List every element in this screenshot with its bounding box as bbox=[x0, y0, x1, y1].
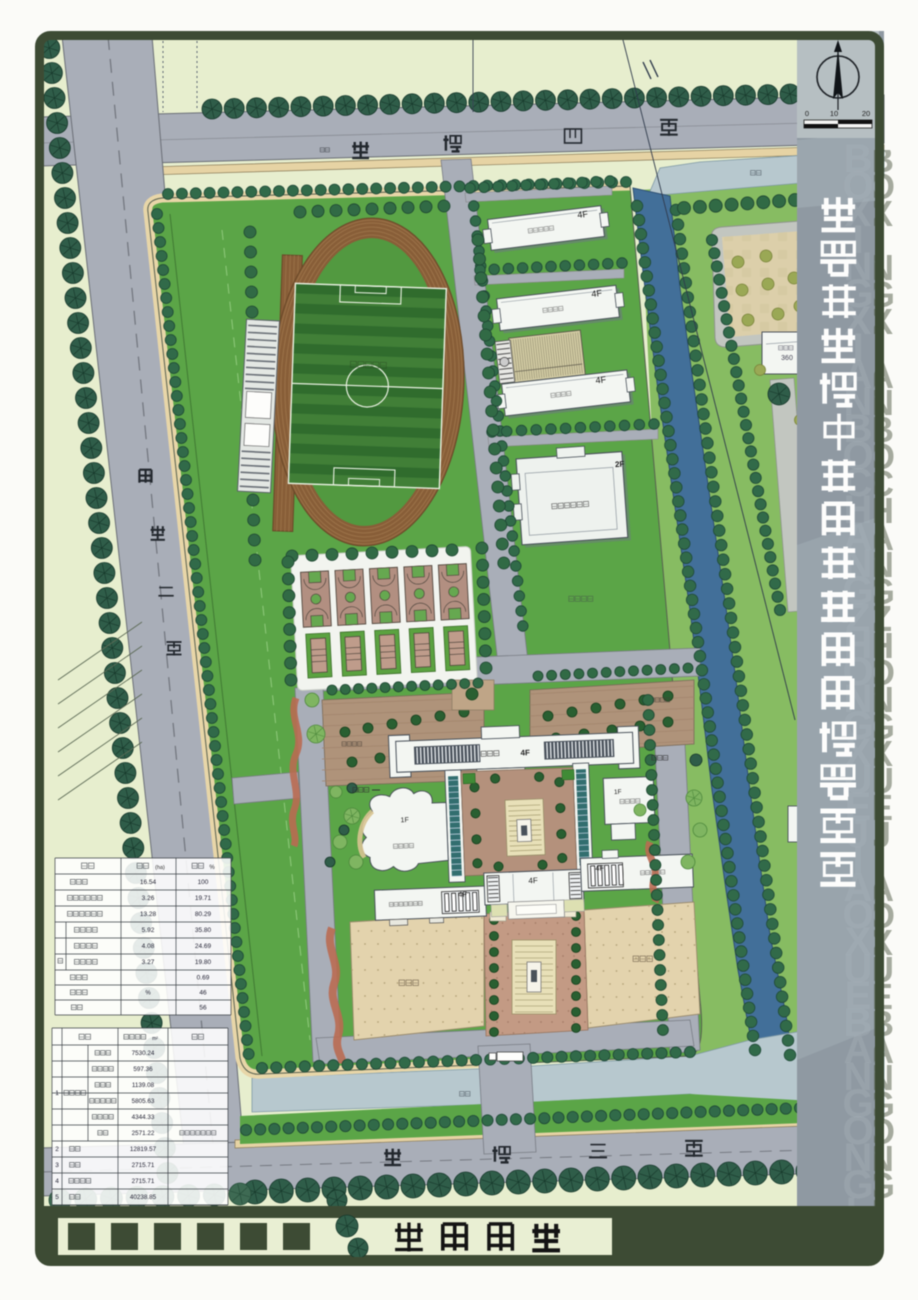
svg-text:1F: 1F bbox=[614, 789, 622, 796]
svg-text:5: 5 bbox=[55, 1194, 59, 1201]
svg-text:4.08: 4.08 bbox=[142, 943, 155, 950]
svg-text:5.92: 5.92 bbox=[142, 927, 155, 934]
svg-text:40238.85: 40238.85 bbox=[130, 1194, 157, 1201]
svg-text:(ha): (ha) bbox=[155, 865, 165, 871]
svg-text:4F: 4F bbox=[595, 863, 605, 872]
svg-text:%: % bbox=[145, 991, 151, 997]
svg-text:2: 2 bbox=[55, 1146, 59, 1153]
svg-text:4: 4 bbox=[55, 1178, 59, 1185]
svg-text:4F: 4F bbox=[520, 748, 530, 757]
svg-text:46: 46 bbox=[199, 990, 207, 997]
svg-text:4F: 4F bbox=[591, 288, 603, 299]
svg-text:1139.08: 1139.08 bbox=[132, 1082, 155, 1089]
svg-text:2F: 2F bbox=[615, 459, 625, 469]
svg-text:3.27: 3.27 bbox=[142, 959, 155, 966]
svg-text:100: 100 bbox=[198, 879, 209, 886]
svg-text:4F: 4F bbox=[595, 374, 607, 385]
svg-text:597.36: 597.36 bbox=[133, 1066, 153, 1073]
svg-text:10: 10 bbox=[830, 109, 838, 118]
svg-text:%: % bbox=[209, 865, 215, 871]
svg-text:0: 0 bbox=[805, 109, 809, 118]
svg-text:2571.22: 2571.22 bbox=[132, 1130, 155, 1137]
svg-text:4344.33: 4344.33 bbox=[132, 1114, 155, 1121]
svg-text:80.29: 80.29 bbox=[195, 911, 212, 918]
svg-text:56: 56 bbox=[199, 1005, 207, 1012]
svg-text:2715.71: 2715.71 bbox=[132, 1178, 155, 1185]
svg-text:0.69: 0.69 bbox=[197, 975, 210, 982]
svg-text:4F: 4F bbox=[458, 890, 468, 899]
svg-text:35.80: 35.80 bbox=[195, 927, 212, 934]
svg-text:1F: 1F bbox=[400, 817, 408, 824]
svg-text:19.71: 19.71 bbox=[195, 895, 212, 902]
svg-text:12819.57: 12819.57 bbox=[130, 1146, 157, 1153]
svg-text:m²: m² bbox=[152, 1036, 158, 1042]
svg-text:24.69: 24.69 bbox=[195, 943, 212, 950]
svg-text:5805.63: 5805.63 bbox=[132, 1098, 155, 1105]
svg-text:4F: 4F bbox=[528, 876, 538, 885]
svg-text:19.80: 19.80 bbox=[195, 959, 212, 966]
svg-text:3: 3 bbox=[55, 1162, 59, 1169]
svg-text:20: 20 bbox=[862, 109, 870, 118]
svg-text:4F: 4F bbox=[577, 209, 589, 220]
svg-text:13.28: 13.28 bbox=[140, 911, 157, 918]
svg-text:1: 1 bbox=[55, 1090, 59, 1097]
svg-text:3.26: 3.26 bbox=[142, 895, 155, 902]
svg-text:2715.71: 2715.71 bbox=[132, 1162, 155, 1169]
svg-text:360: 360 bbox=[781, 355, 793, 362]
svg-text:7530.24: 7530.24 bbox=[132, 1050, 155, 1057]
svg-text:16.54: 16.54 bbox=[140, 879, 157, 886]
